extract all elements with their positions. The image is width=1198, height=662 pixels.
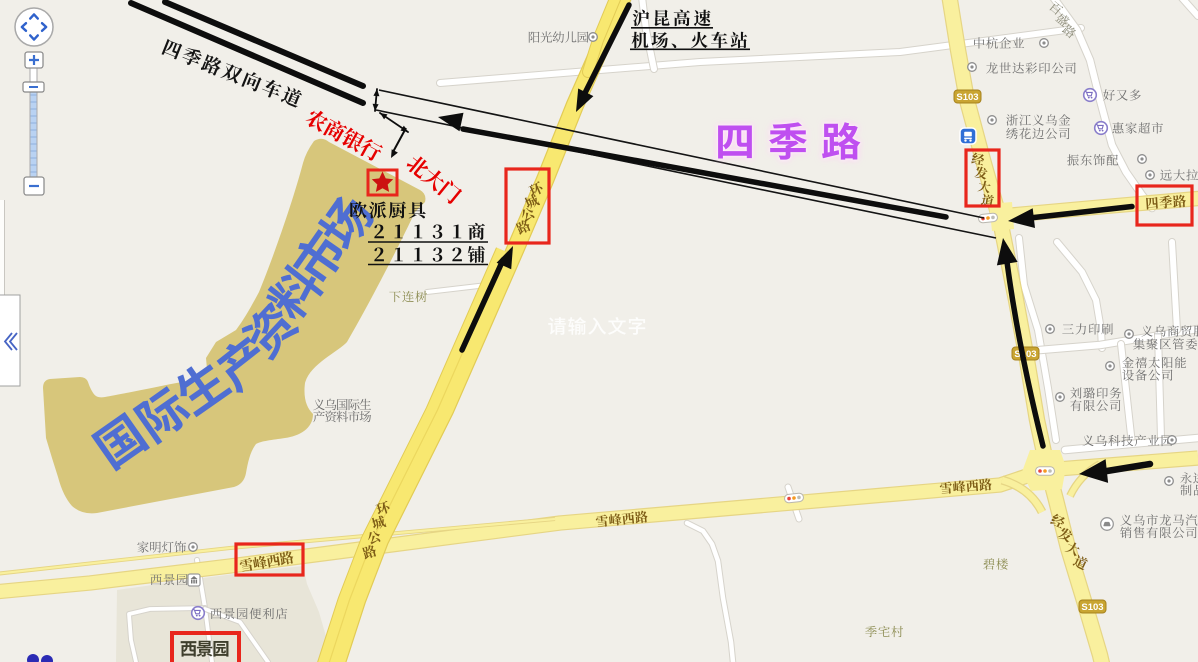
svg-text:S103: S103 (1081, 602, 1103, 613)
svg-text:S103: S103 (956, 92, 978, 103)
